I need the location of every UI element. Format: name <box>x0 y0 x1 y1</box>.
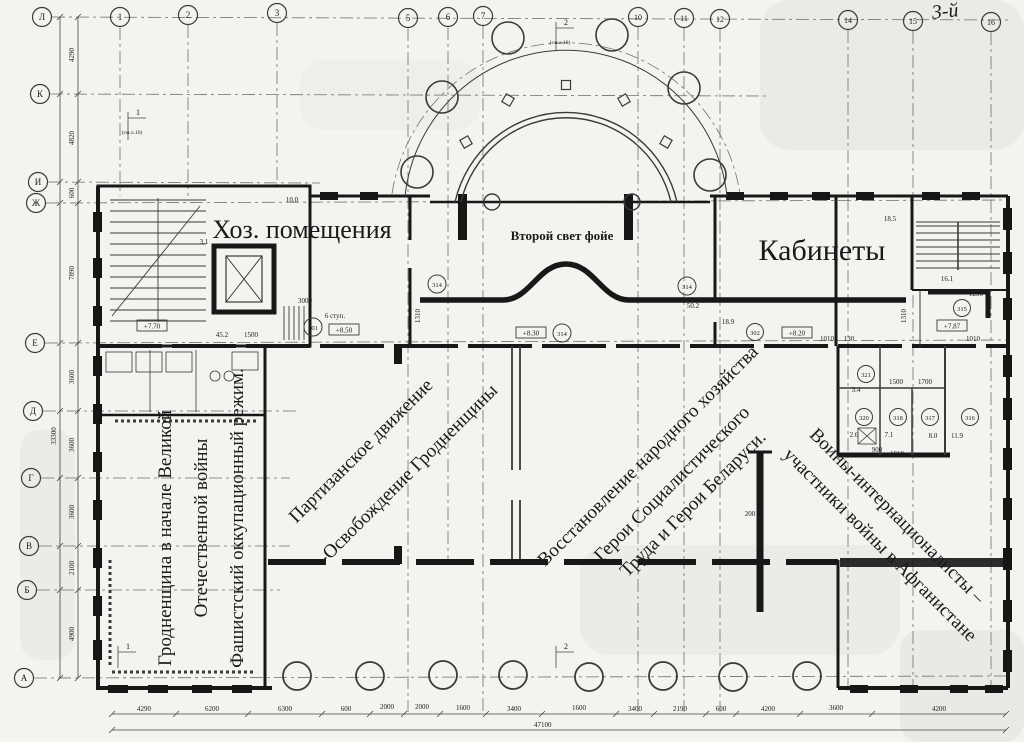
area-80: 8.0 <box>929 432 938 440</box>
dim-left-1: 4820 <box>68 131 76 146</box>
row-label-e: Е <box>32 338 38 348</box>
col-label-5: 5 <box>406 13 411 23</box>
col-label-1: 1 <box>118 12 123 22</box>
dim-left-6: 3600 <box>68 505 76 520</box>
hall1-line1: Гродненщина в начале Великой <box>155 410 176 666</box>
row-label-a: А <box>21 673 28 683</box>
dim-900: 900 <box>872 446 883 454</box>
dim-bottom-6: 1600 <box>456 704 471 712</box>
note-steps: 6 ступ. <box>325 312 346 320</box>
dim-bottom-14: 4200 <box>932 705 947 713</box>
dim-bottom-5: 2000 <box>415 703 430 711</box>
dim-bottom-3: 600 <box>341 705 352 713</box>
room-number-314c: 314 <box>557 331 568 338</box>
room-number-301: 301 <box>308 325 318 332</box>
room-number-314b: 314 <box>682 284 693 291</box>
area-71: 7.1 <box>885 431 894 439</box>
area-34: 3.4 <box>852 386 861 394</box>
area-31: 3.1 <box>200 238 209 246</box>
dim-1010a: 1010 <box>966 335 981 343</box>
row-label-g: Г <box>28 473 33 483</box>
row-label-zh: Ж <box>32 198 41 208</box>
section-mark-2-sheet: (см.л.10) <box>550 39 571 46</box>
area-502: 50.2 <box>687 302 700 310</box>
elevation-770: +7.70 <box>144 323 161 331</box>
dim-bottom-1: 6200 <box>205 705 220 713</box>
row-label-d: Д <box>30 406 36 416</box>
col-label-10: 10 <box>634 13 642 22</box>
room-number-317: 317 <box>925 415 936 422</box>
dim-bottom-10: 2190 <box>673 705 688 713</box>
dim-1290: 1290 <box>969 290 984 298</box>
dim-1500b: 1500 <box>889 378 904 386</box>
col-label-3: 3 <box>275 8 280 18</box>
offices-label: Кабинеты <box>759 234 886 267</box>
scanned-floor-plan-page: 2 (см.л.10) 1 (см.л.10) 1 2 1 2 3 5 6 7 … <box>0 0 1024 742</box>
room-number-314a: 314 <box>432 282 443 289</box>
dim-200: 200 <box>745 510 756 518</box>
col-label-7: 7 <box>481 11 486 21</box>
area-189: 18.9 <box>722 318 735 326</box>
col-label-6: 6 <box>446 12 451 22</box>
dim-left-7: 2100 <box>68 561 76 576</box>
dim-bottom-7: 3400 <box>507 705 522 713</box>
dim-1010b: 1010 <box>820 335 835 343</box>
elevation-850: +8.50 <box>336 327 353 335</box>
room-number-316: 316 <box>965 415 976 422</box>
row-label-l: Л <box>39 12 45 22</box>
dim-1500: 1500 <box>244 331 259 339</box>
hall1-line2: Отечественной войны <box>191 438 212 617</box>
room-number-320: 320 <box>859 415 869 422</box>
dim-bottom-4: 2000 <box>380 703 395 711</box>
room-number-318: 318 <box>893 415 903 422</box>
dim-bottom-13: 3600 <box>829 704 844 712</box>
hall1-line3: Фашистский оккупационный режим. <box>227 368 248 668</box>
dim-left-8: 4900 <box>68 627 76 642</box>
floor-plan-canvas: 2 (см.л.10) 1 (см.л.10) 1 2 1 2 3 5 6 7 … <box>0 0 1024 742</box>
dim-left-2: 600 <box>68 187 76 198</box>
area-161: 16.1 <box>941 275 954 283</box>
dim-bottom-total: 47100 <box>534 721 552 729</box>
dim-1010c: 1010 <box>890 450 905 458</box>
col-label-2: 2 <box>186 10 191 20</box>
floor-note-handwritten: 3-й <box>930 0 960 24</box>
dim-3000: 3000 <box>298 297 313 305</box>
elevation-787: +7.87 <box>944 323 961 331</box>
area-26: 2.6 <box>850 431 859 439</box>
foyer-label: Второй свет фойе <box>511 228 614 243</box>
section-mark-2-bottom: 2 <box>564 642 568 651</box>
dim-left-total: 33300 <box>50 427 58 445</box>
dim-130: 130 <box>844 335 855 343</box>
row-label-b: Б <box>24 585 29 595</box>
area-452: 45.2 <box>216 331 229 339</box>
section-mark-1: 1 <box>136 108 140 117</box>
row-label-v: В <box>26 541 32 551</box>
row-label-k: К <box>37 89 44 99</box>
area-185: 18.5 <box>884 215 897 223</box>
elevation-820: +8.20 <box>789 330 806 338</box>
col-label-16: 16 <box>987 18 995 27</box>
dim-bottom-12: 4200 <box>761 705 776 713</box>
dim-bottom-2: 6300 <box>278 705 293 713</box>
col-label-12: 12 <box>716 15 724 24</box>
area-utility: 10.0 <box>286 196 299 204</box>
dim-1310a: 1310 <box>414 309 422 324</box>
dim-1310b: 1310 <box>900 309 908 324</box>
dim-bottom-8: 1600 <box>572 704 587 712</box>
dim-bottom-9: 3400 <box>628 705 643 713</box>
room-number-315: 315 <box>957 306 967 313</box>
section-mark-1-sheet: (см.л.10) <box>122 129 143 136</box>
utility-rooms-label: Хоз. помещения <box>212 215 391 244</box>
dim-left-5: 3600 <box>68 438 76 453</box>
area-119: 11.9 <box>951 432 963 440</box>
room-number-302: 302 <box>750 330 760 337</box>
dim-1700: 1700 <box>918 378 933 386</box>
elevation-830: +8.30 <box>523 330 540 338</box>
dim-bottom-0: 4290 <box>137 705 152 713</box>
row-label-i: И <box>35 177 42 187</box>
dim-bottom-11: 600 <box>716 705 727 713</box>
dim-left-3: 7890 <box>68 266 76 281</box>
dim-left-0: 4290 <box>68 48 76 63</box>
col-label-14: 14 <box>844 16 852 25</box>
section-mark-2: 2 <box>564 18 568 27</box>
room-number-321: 321 <box>861 372 871 379</box>
col-label-11: 11 <box>680 14 688 23</box>
col-label-15: 15 <box>909 17 917 26</box>
section-mark-1-bottom: 1 <box>126 642 130 651</box>
dim-left-4: 3600 <box>68 370 76 385</box>
